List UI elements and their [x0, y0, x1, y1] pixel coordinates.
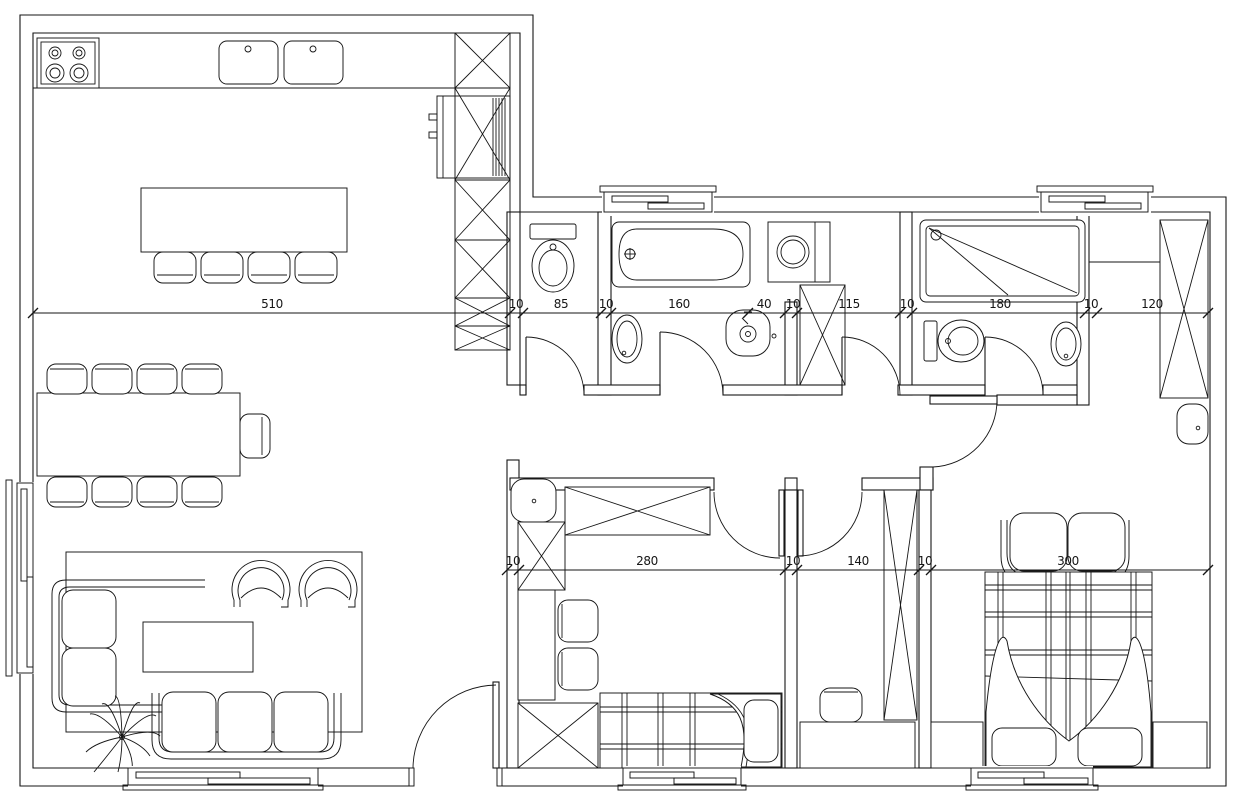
- child-room-desk: [518, 590, 555, 700]
- dim-label-140: 140: [847, 554, 869, 568]
- potted-plant: [86, 696, 160, 772]
- closet-wardrobe-hatched: [1160, 220, 1208, 398]
- shower-room-oval-sink: [1051, 322, 1081, 366]
- dim-label-10e: 10: [1084, 297, 1098, 311]
- shower-tray: [920, 220, 1085, 302]
- bedroom-door: [930, 396, 997, 467]
- wc-door: [526, 337, 584, 395]
- bathroom-door: [660, 332, 723, 395]
- dim-label-10c: 10: [786, 297, 800, 311]
- window-left-wall: [6, 480, 38, 676]
- dim-label-280: 280: [636, 554, 658, 568]
- dim-label-10a: 10: [509, 297, 523, 311]
- stove-cooktop: [37, 38, 99, 88]
- sofa-three-seat: [152, 692, 341, 759]
- nightstand-right: [1153, 722, 1207, 768]
- washing-machine: [768, 222, 830, 282]
- laundry-door: [842, 337, 900, 395]
- island-stools: [154, 252, 337, 283]
- shower-room-door: [985, 337, 1043, 395]
- dim-label-85: 85: [554, 297, 568, 311]
- window-living-room: [123, 766, 323, 790]
- dim-label-160: 160: [668, 297, 690, 311]
- cabinet-column-hatched: [455, 33, 510, 350]
- dim-label-510: 510: [261, 297, 283, 311]
- dim-label-115: 115: [838, 297, 860, 311]
- child-room-door: [714, 490, 784, 558]
- dim-label-10f: 10: [506, 554, 520, 568]
- nightstand-left: [931, 722, 983, 768]
- child-room-sink: [511, 479, 556, 522]
- child-room-cabinet-left: [518, 522, 565, 590]
- dim-label-120: 120: [1141, 297, 1163, 311]
- dim-label-10d: 10: [900, 297, 914, 311]
- child-room-chest-hatched: [518, 703, 598, 768]
- dim-label-180: 180: [989, 297, 1011, 311]
- shower-room-toilet: [924, 320, 984, 362]
- inner-hall-desk: [800, 722, 915, 768]
- dim-label-40: 40: [757, 297, 771, 311]
- kitchen-island: [141, 188, 347, 252]
- floor-plan-canvas: 510 10 85 10 160 40 10 115 10 180 10 120…: [0, 0, 1242, 812]
- bed-foot-bench: [1001, 513, 1129, 581]
- inner-hall-chair: [820, 688, 862, 722]
- kitchen-double-sink: [219, 41, 343, 84]
- dim-label-10b: 10: [599, 297, 613, 311]
- armchair-left: [232, 560, 290, 607]
- bathroom-oval-sink: [612, 315, 642, 363]
- coffee-table: [143, 622, 253, 672]
- wc-toilet: [530, 224, 576, 292]
- bathtub: [612, 222, 750, 287]
- inner-hall-wardrobe-hatched: [884, 490, 917, 720]
- armchair-right: [299, 560, 357, 607]
- dim-label-10h: 10: [918, 554, 932, 568]
- window-child-room: [618, 766, 746, 790]
- dim-label-300: 300: [1057, 554, 1079, 568]
- single-bed: [600, 693, 782, 768]
- inner-hall-door: [798, 490, 862, 556]
- corner-hand-basin: [1177, 404, 1208, 444]
- floor-plan-drawing: 510 10 85 10 160 40 10 115 10 180 10 120…: [0, 0, 1242, 812]
- pedestal-basin: [726, 310, 776, 356]
- window-shower-top: [1037, 186, 1153, 216]
- window-bathroom-top: [600, 186, 716, 216]
- dim-label-10g: 10: [786, 554, 800, 568]
- window-master-bedroom: [966, 766, 1098, 790]
- dining-table: [37, 393, 240, 476]
- child-room-desk-chairs: [558, 600, 598, 690]
- entrance-door: [409, 682, 502, 788]
- double-bed: [985, 572, 1152, 768]
- child-room-wardrobe-top: [565, 487, 710, 535]
